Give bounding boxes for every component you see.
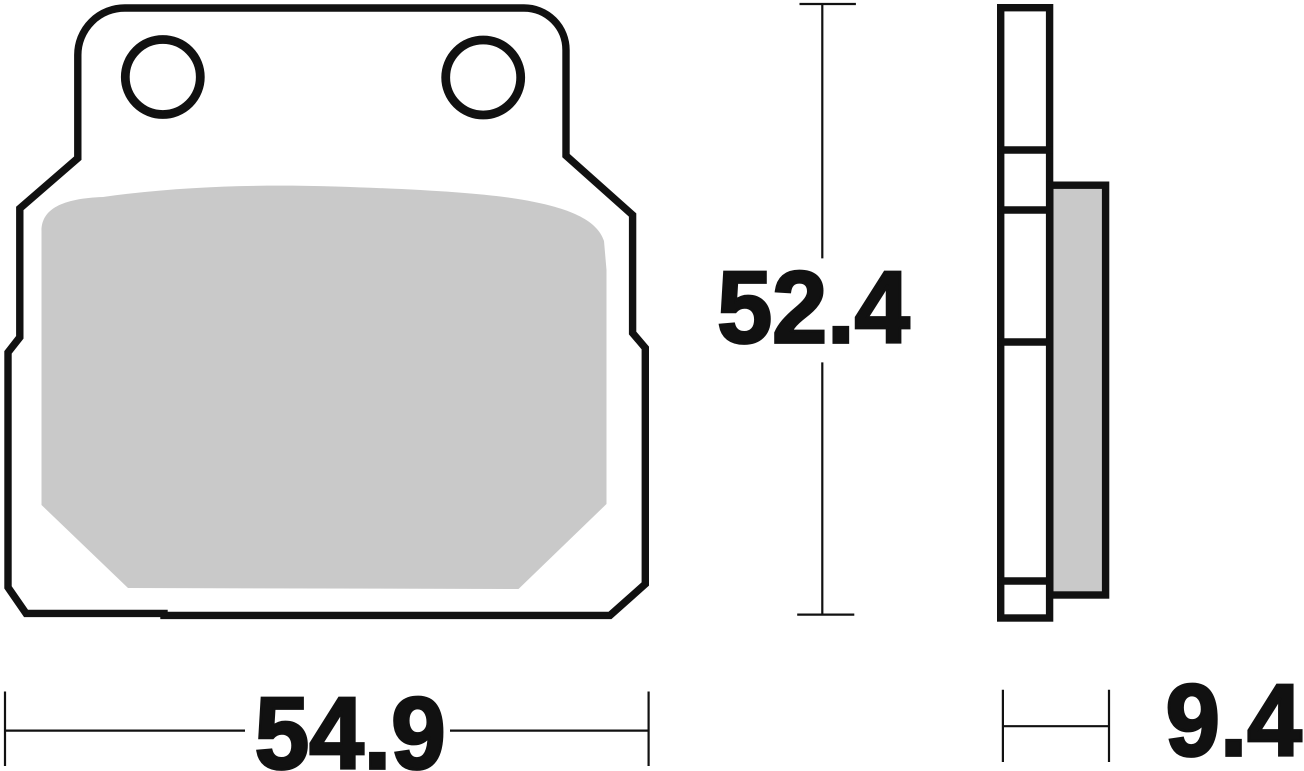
svg-text:54.9: 54.9 [255,677,446,771]
svg-text:9.4: 9.4 [1166,664,1302,771]
svg-text:52.4: 52.4 [717,251,910,365]
